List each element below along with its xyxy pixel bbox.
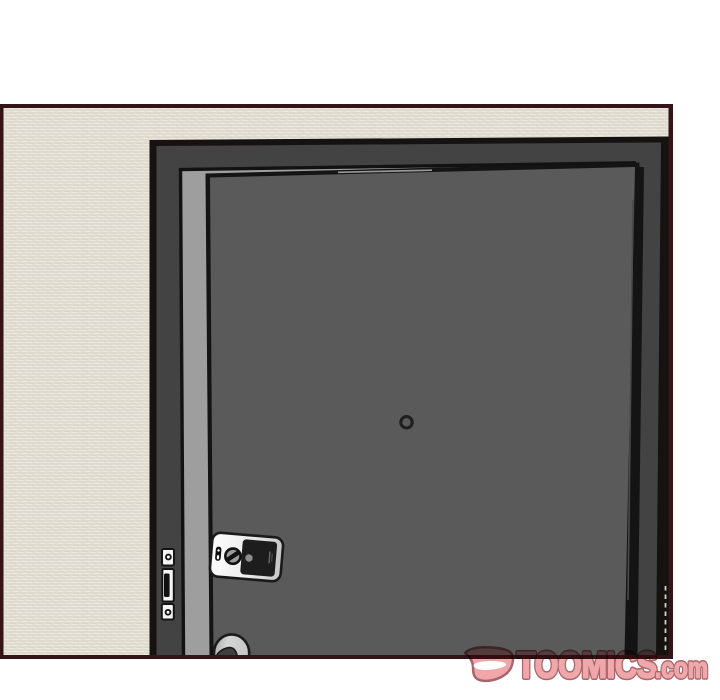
- svg-text:.com: .com: [655, 653, 708, 685]
- svg-text:TOOMICS: TOOMICS: [517, 645, 657, 686]
